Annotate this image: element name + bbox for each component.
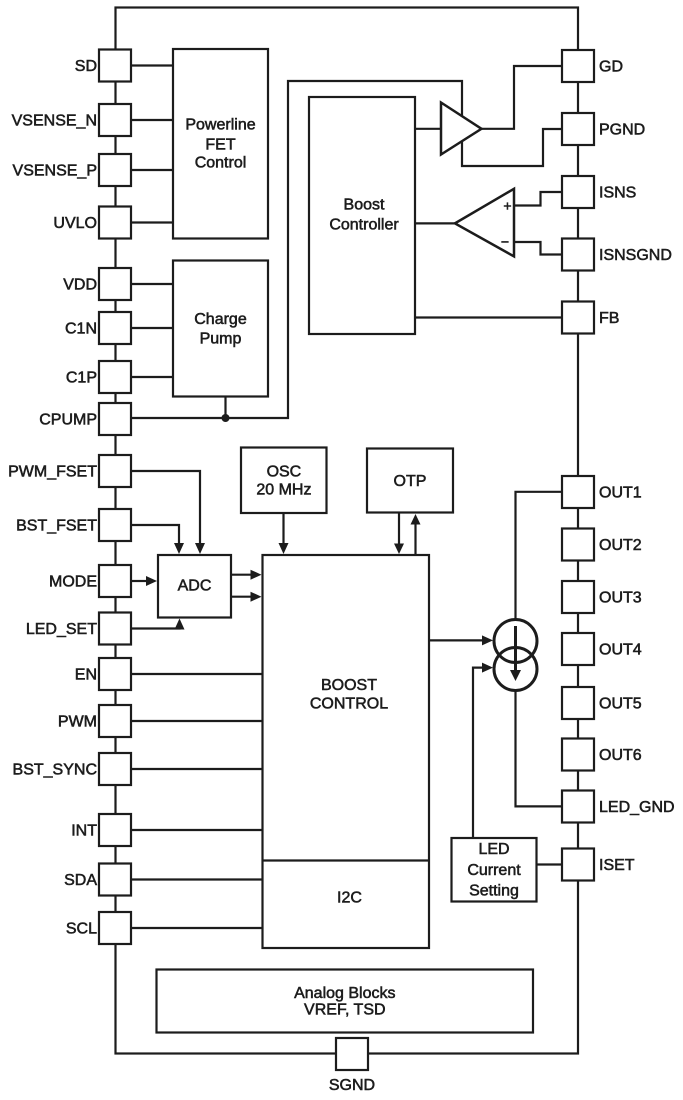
svg-text:VSENSE_N: VSENSE_N [12, 113, 97, 130]
svg-text:OUT2: OUT2 [599, 537, 642, 554]
svg-text:GD: GD [599, 59, 623, 76]
svg-text:OUT6: OUT6 [599, 747, 642, 764]
svg-text:FET: FET [205, 137, 235, 154]
svg-text:Pump: Pump [200, 331, 242, 348]
svg-text:C1P: C1P [66, 370, 97, 387]
svg-text:CPUMP: CPUMP [39, 412, 97, 429]
svg-text:BST_FSET: BST_FSET [16, 518, 97, 535]
svg-text:EN: EN [75, 667, 97, 684]
svg-text:I2C: I2C [337, 890, 362, 907]
svg-text:Boost: Boost [344, 197, 385, 214]
svg-text:OUT5: OUT5 [599, 696, 642, 713]
svg-text:ISNSGND: ISNSGND [599, 247, 672, 264]
svg-text:Setting: Setting [469, 882, 519, 899]
svg-text:ADC: ADC [178, 578, 212, 595]
svg-text:UVLO: UVLO [53, 215, 97, 232]
svg-text:INT: INT [71, 823, 97, 840]
svg-text:OUT3: OUT3 [599, 590, 642, 607]
svg-text:Current: Current [467, 862, 521, 879]
svg-text:SGND: SGND [329, 1077, 375, 1094]
svg-text:FB: FB [599, 310, 619, 327]
svg-text:VREF, TSD: VREF, TSD [304, 1002, 386, 1019]
svg-text:VSENSE_P: VSENSE_P [13, 163, 97, 180]
svg-text:Powerline: Powerline [185, 117, 255, 134]
svg-text:BOOST: BOOST [321, 677, 377, 694]
svg-text:Analog Blocks: Analog Blocks [294, 985, 395, 1002]
svg-text:VDD: VDD [63, 277, 97, 294]
svg-text:SCL: SCL [66, 921, 97, 938]
svg-text:+: + [503, 198, 511, 214]
svg-text:PWM: PWM [58, 714, 97, 731]
svg-text:LED_SET: LED_SET [26, 621, 97, 638]
svg-text:LED: LED [478, 841, 509, 858]
svg-text:C1N: C1N [65, 321, 97, 338]
svg-text:ISNS: ISNS [599, 185, 636, 202]
svg-text:OSC: OSC [267, 463, 302, 480]
svg-text:Charge: Charge [194, 311, 247, 328]
svg-text:BST_SYNC: BST_SYNC [13, 762, 97, 779]
svg-text:OTP: OTP [394, 473, 427, 490]
svg-text:OUT4: OUT4 [599, 642, 642, 659]
svg-text:−: − [501, 234, 509, 250]
svg-text:SDA: SDA [64, 872, 97, 889]
svg-text:LED_GND: LED_GND [599, 799, 675, 816]
svg-text:ISET: ISET [599, 857, 635, 874]
svg-text:PWM_FSET: PWM_FSET [8, 464, 97, 481]
svg-text:PGND: PGND [599, 122, 645, 139]
svg-text:20 MHz: 20 MHz [256, 482, 311, 499]
svg-text:Controller: Controller [329, 217, 399, 234]
svg-text:OUT1: OUT1 [599, 485, 642, 502]
svg-text:MODE: MODE [49, 574, 97, 591]
svg-text:SD: SD [75, 58, 97, 75]
svg-text:CONTROL: CONTROL [310, 695, 388, 712]
svg-text:Control: Control [195, 155, 247, 172]
